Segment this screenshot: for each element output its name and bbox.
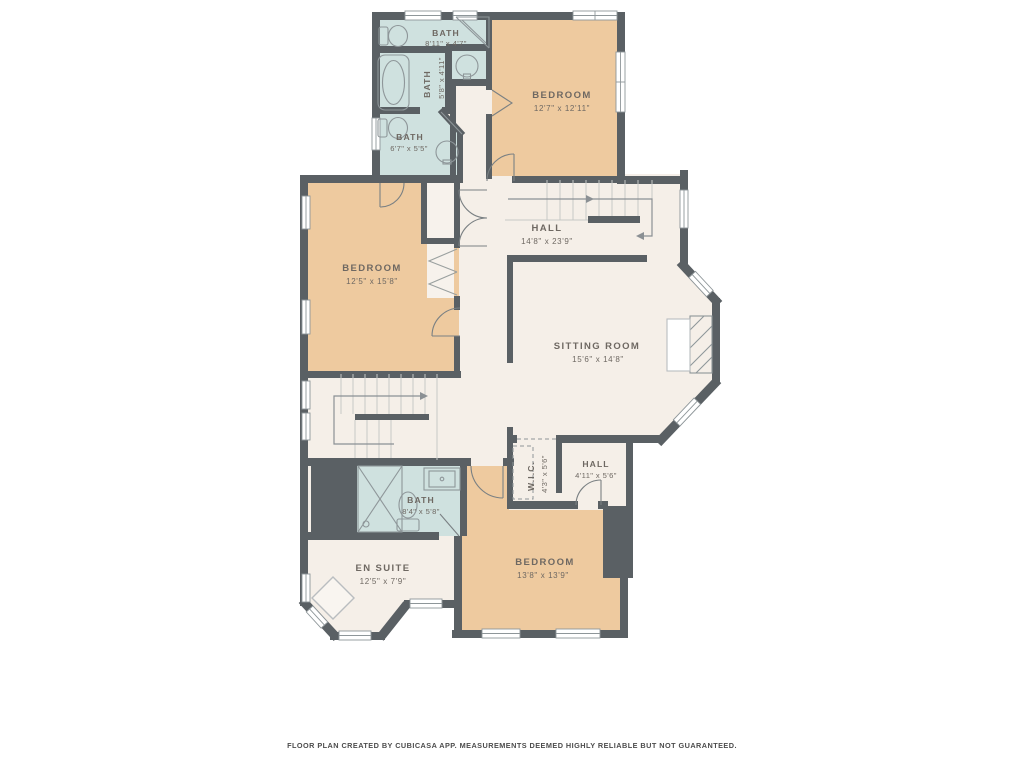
- floor-plan: BATH 8'11" x 4'7" BATH 5'8" x 4'11" BATH…: [0, 0, 1024, 768]
- window-icon: [410, 599, 442, 608]
- window-icon: [302, 381, 310, 409]
- window-icon: [616, 52, 625, 112]
- window-icon: [556, 629, 600, 638]
- window-icon: [573, 11, 617, 20]
- disclaimer-text: FLOOR PLAN CREATED BY CUBICASA APP. MEAS…: [0, 741, 1024, 750]
- window-icon: [302, 196, 310, 229]
- bath-mid-label: BATH: [396, 132, 424, 142]
- window-icon: [482, 629, 520, 638]
- en-suite-label: EN SUITE: [355, 563, 410, 574]
- hall-lower-label: HALL: [582, 459, 609, 469]
- hall-main-dims: 14'8" x 23'9": [521, 237, 573, 246]
- bath-tub-label: BATH: [422, 70, 432, 98]
- bath-top-label: BATH: [432, 28, 460, 38]
- bath-top-dims: 8'11" x 4'7": [425, 39, 467, 48]
- window-icon: [453, 11, 477, 20]
- hall-lower-dims: 4'11" x 5'6": [575, 471, 617, 480]
- bedroom-mid-label: BEDROOM: [342, 263, 401, 274]
- wic-label: W.I.C.: [526, 461, 536, 491]
- bedroom-bottom-dims: 13'8" x 13'9": [517, 571, 569, 580]
- wic-dims: 4'3" x 5'6": [540, 455, 549, 493]
- closet-alcove-floor: [427, 183, 454, 238]
- window-icon: [302, 413, 310, 440]
- sitting-room-dims: 15'6" x 14'8": [572, 355, 624, 364]
- window-icon: [302, 574, 310, 602]
- bedroom-mid-dims: 12'5" x 15'8": [346, 277, 398, 286]
- bath-ensuite-label: BATH: [407, 495, 435, 505]
- bath-ensuite-dims: 8'4" x 5'8": [402, 507, 440, 516]
- window-icon: [339, 631, 371, 640]
- window-icon: [372, 118, 380, 150]
- floor-plan-page: BATH 8'11" x 4'7" BATH 5'8" x 4'11" BATH…: [0, 0, 1024, 768]
- window-icon: [405, 11, 441, 20]
- bath-tub-dims: 5'8" x 4'11": [437, 57, 446, 99]
- floor-plan-svg: BATH 8'11" x 4'7" BATH 5'8" x 4'11" BATH…: [0, 0, 1024, 768]
- en-suite-dims: 12'5" x 7'9": [360, 577, 407, 586]
- bedroom-top-dims: 12'7" x 12'11": [534, 104, 590, 113]
- sitting-room-label: SITTING ROOM: [554, 341, 640, 352]
- bedroom-top-label: BEDROOM: [532, 90, 591, 101]
- bath-mid-dims: 6'7" x 5'5": [390, 144, 428, 153]
- hall-main-label: HALL: [532, 223, 563, 234]
- bedroom-bottom-label: BEDROOM: [515, 557, 574, 568]
- window-icon: [680, 190, 688, 228]
- window-icon: [302, 300, 310, 334]
